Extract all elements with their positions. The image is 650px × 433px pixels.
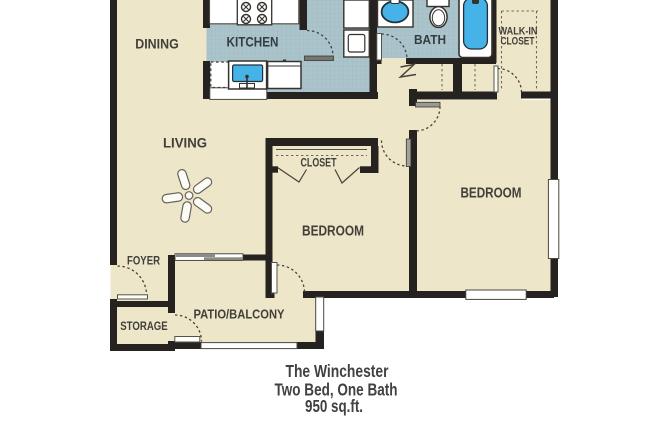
svg-text:LIVING: LIVING [163,135,207,151]
svg-text:CLOSET: CLOSET [501,36,535,48]
svg-text:STORAGE: STORAGE [120,321,168,333]
svg-text:950 sq.ft.: 950 sq.ft. [305,396,363,416]
svg-text:BATH: BATH [414,33,446,47]
svg-text:KITCHEN: KITCHEN [227,34,279,50]
svg-text:BEDROOM: BEDROOM [461,186,522,202]
svg-text:The Winchester: The Winchester [286,361,389,381]
svg-text:FOYER: FOYER [127,256,161,268]
svg-text:CLOSET: CLOSET [301,158,337,170]
svg-text:BEDROOM: BEDROOM [302,224,364,240]
svg-text:PATIO/BALCONY: PATIO/BALCONY [194,307,285,322]
svg-text:DINING: DINING [135,36,179,52]
